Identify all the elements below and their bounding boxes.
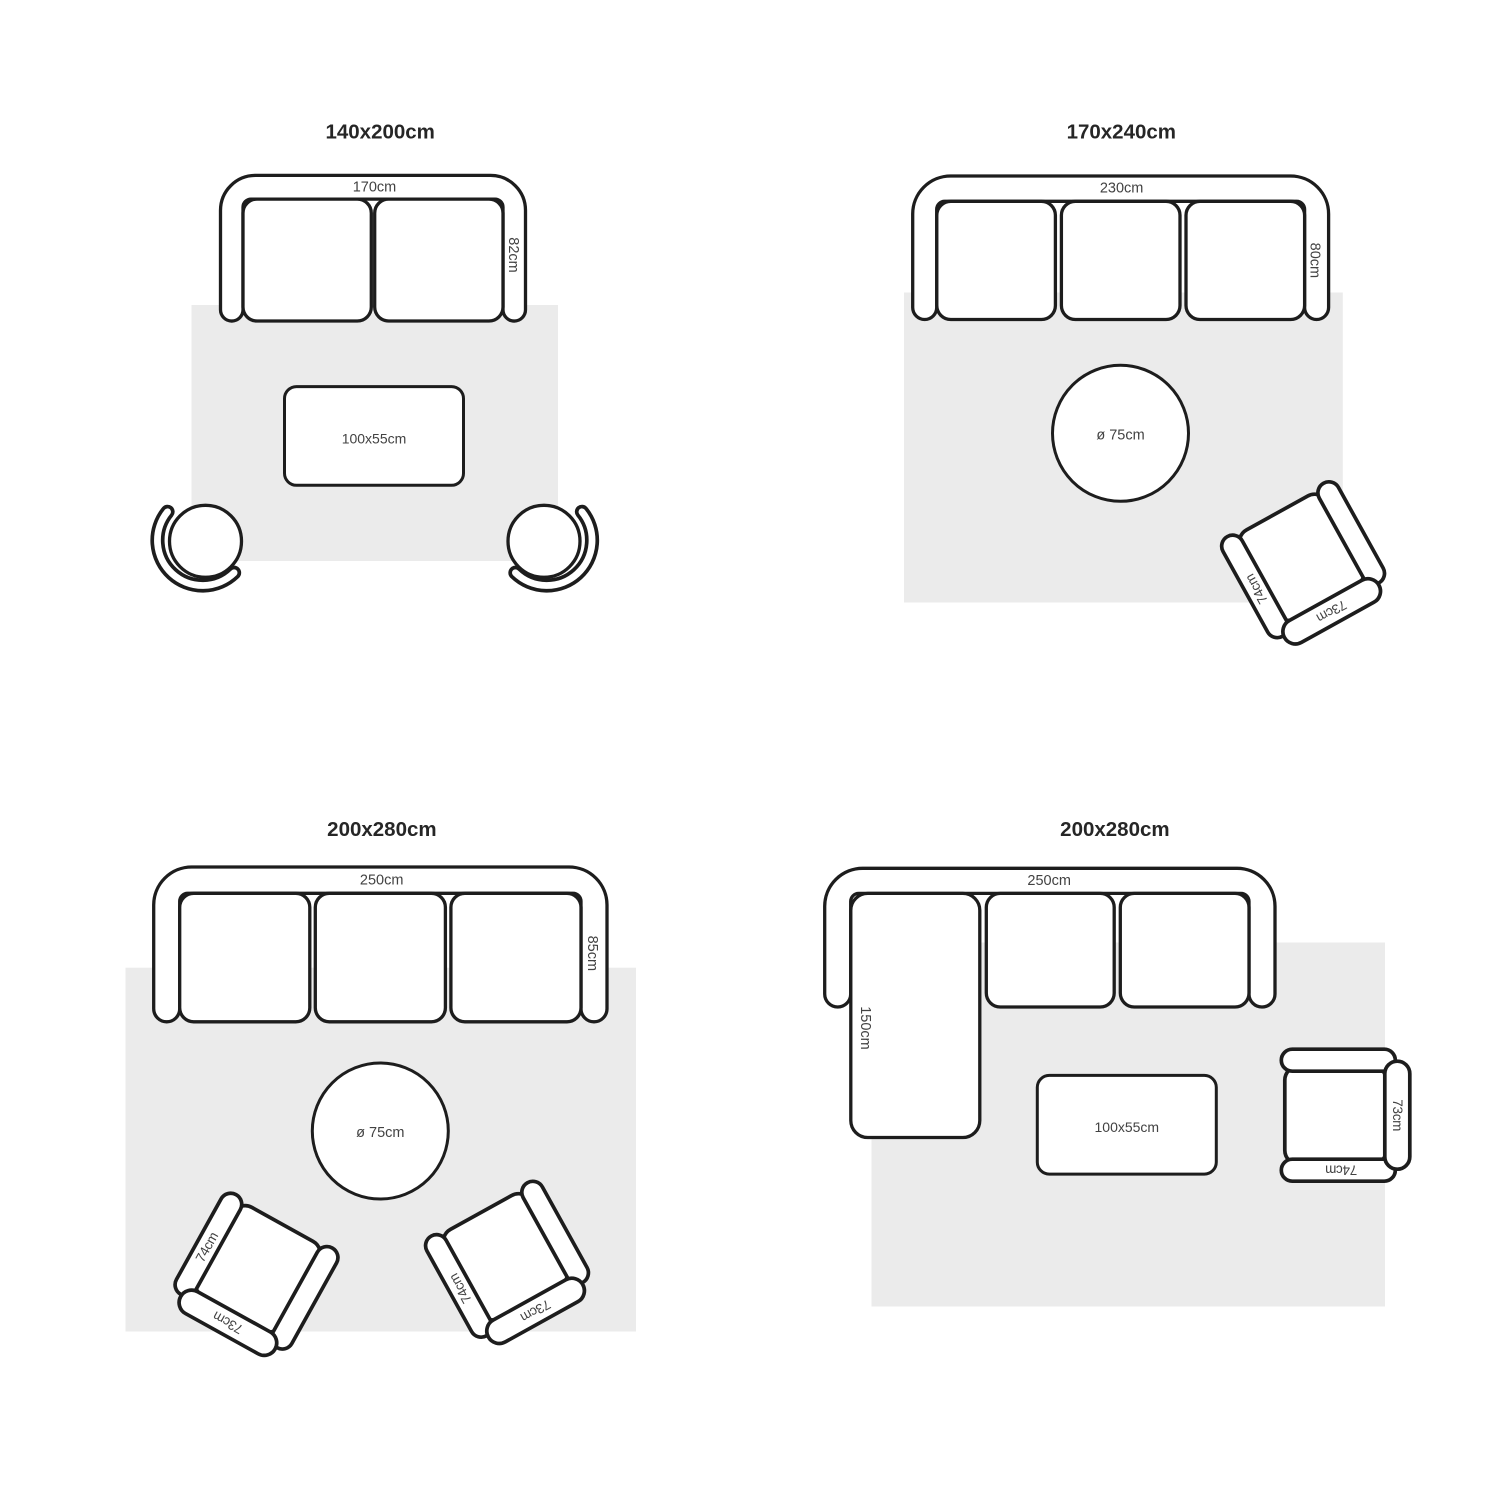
svg-text:80cm: 80cm xyxy=(1307,243,1323,278)
svg-text:73cm: 73cm xyxy=(1390,1099,1405,1131)
svg-text:74cm: 74cm xyxy=(1325,1163,1357,1178)
svg-text:ø 75cm: ø 75cm xyxy=(356,1125,404,1141)
svg-text:82cm: 82cm xyxy=(505,237,521,272)
svg-text:100x55cm: 100x55cm xyxy=(342,431,407,447)
svg-text:230cm: 230cm xyxy=(1100,181,1144,197)
svg-text:85cm: 85cm xyxy=(584,936,600,971)
svg-text:200x280cm: 200x280cm xyxy=(327,818,436,841)
svg-text:170cm: 170cm xyxy=(353,179,397,195)
svg-text:250cm: 250cm xyxy=(360,872,404,888)
svg-text:100x55cm: 100x55cm xyxy=(1095,1119,1160,1135)
svg-text:150cm: 150cm xyxy=(857,1006,873,1050)
svg-text:140x200cm: 140x200cm xyxy=(325,121,434,144)
svg-text:200x280cm: 200x280cm xyxy=(1060,818,1169,841)
svg-text:ø 75cm: ø 75cm xyxy=(1096,427,1144,443)
svg-text:170x240cm: 170x240cm xyxy=(1067,121,1176,144)
svg-text:250cm: 250cm xyxy=(1027,873,1071,889)
